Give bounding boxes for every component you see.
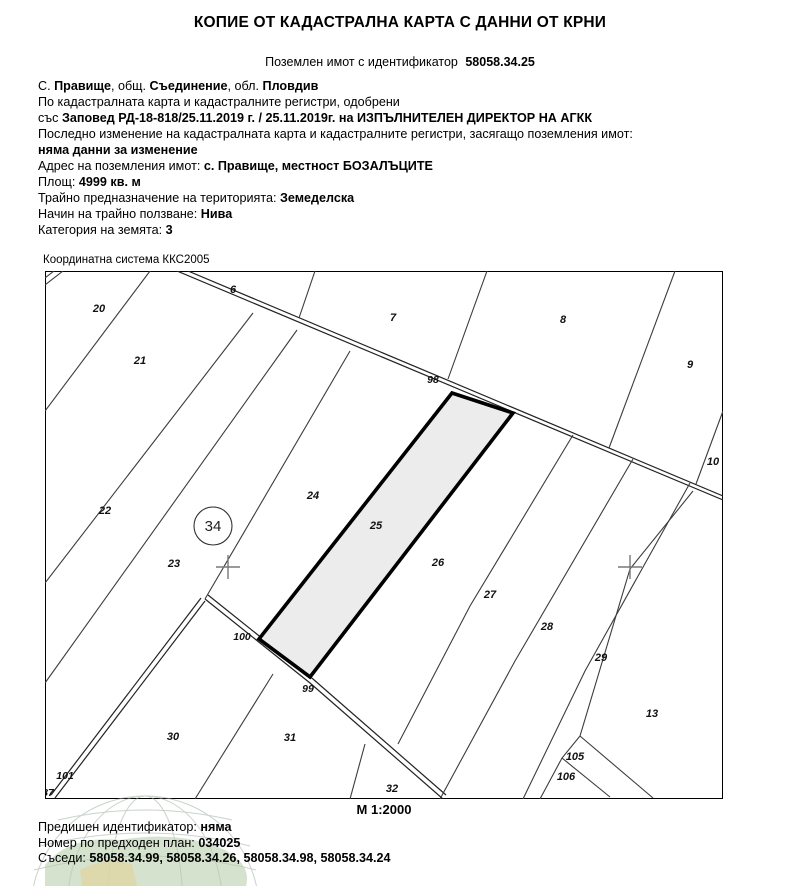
parcel-label-21: 21	[133, 355, 146, 367]
parcel-label-27: 27	[483, 589, 497, 601]
property-info: С. Правище, общ. Съединение, обл. Пловди…	[38, 78, 778, 238]
parcel-label-10: 10	[707, 456, 720, 468]
parcel-label-13: 13	[646, 708, 658, 720]
info-line: няма данни за изменение	[38, 142, 778, 158]
parcel-label-26: 26	[431, 557, 445, 569]
parcel-label-28: 28	[540, 621, 554, 633]
road-label-100: 100	[233, 631, 251, 643]
parcel-label-106: 106	[557, 771, 576, 783]
cadastral-map: 34 6789102021222324252627282913303132105…	[45, 271, 723, 799]
info-line: Площ: 4999 кв. м	[38, 174, 778, 190]
parcel-label-24: 24	[306, 490, 319, 502]
road-label-101: 101	[56, 770, 74, 782]
parcel-label-22: 22	[98, 505, 111, 517]
footer-info: Предишен идентификатор: нямаНомер по пре…	[38, 820, 778, 867]
parcel-label-30: 30	[167, 731, 180, 743]
parcel-label-7: 7	[390, 312, 397, 324]
info-line: Съседи: 58058.34.99, 58058.34.26, 58058.…	[38, 851, 778, 867]
parcel-label-23: 23	[167, 558, 180, 570]
parcel-label-8: 8	[560, 314, 567, 326]
parcel-label-31: 31	[284, 732, 296, 744]
info-line: Адрес на поземления имот: с. Правище, ме…	[38, 158, 778, 174]
cadastral-document-page: { "header": { "title": "КОПИЕ ОТ КАДАСТР…	[0, 0, 800, 886]
info-line: По кадастралната карта и кадастралните р…	[38, 94, 778, 110]
identifier-value: 58058.34.25	[465, 55, 535, 69]
road-label-87: 87	[45, 787, 55, 799]
info-line: Категория на земята: 3	[38, 222, 778, 238]
document-title: КОПИЕ ОТ КАДАСТРАЛНА КАРТА С ДАННИ ОТ КР…	[0, 14, 800, 32]
parcel-label-20: 20	[92, 303, 106, 315]
road-label-98: 98	[427, 374, 439, 386]
coordinate-system-label: Координатна система ККС2005	[43, 254, 210, 266]
parcel-label-6: 6	[230, 284, 237, 296]
info-line: Начин на трайно ползване: Нива	[38, 206, 778, 222]
info-line: Последно изменение на кадастралната карт…	[38, 126, 778, 142]
info-line: Предишен идентификатор: няма	[38, 820, 778, 836]
info-line: С. Правище, общ. Съединение, обл. Пловди…	[38, 78, 778, 94]
region-number: 34	[205, 518, 222, 535]
cadastral-map-svg: 34 6789102021222324252627282913303132105…	[45, 271, 723, 799]
parcel-label-105: 105	[566, 751, 585, 763]
road-label-99: 99	[302, 683, 314, 695]
parcel-label-29: 29	[594, 652, 608, 664]
parcel-label-25: 25	[369, 520, 383, 532]
info-line: Трайно предназначение на територията: Зе…	[38, 190, 778, 206]
parcel-label-32: 32	[386, 783, 398, 795]
info-line: със Заповед РД-18-818/25.11.2019 г. / 25…	[38, 110, 778, 126]
map-scale-label: М 1:2000	[45, 802, 723, 817]
identifier-label: Поземлен имот с идентификатор	[265, 55, 458, 69]
info-line: Номер по предходен план: 034025	[38, 836, 778, 852]
parcel-label-9: 9	[687, 359, 694, 371]
property-identifier-line: Поземлен имот с идентификатор 58058.34.2…	[0, 55, 800, 69]
